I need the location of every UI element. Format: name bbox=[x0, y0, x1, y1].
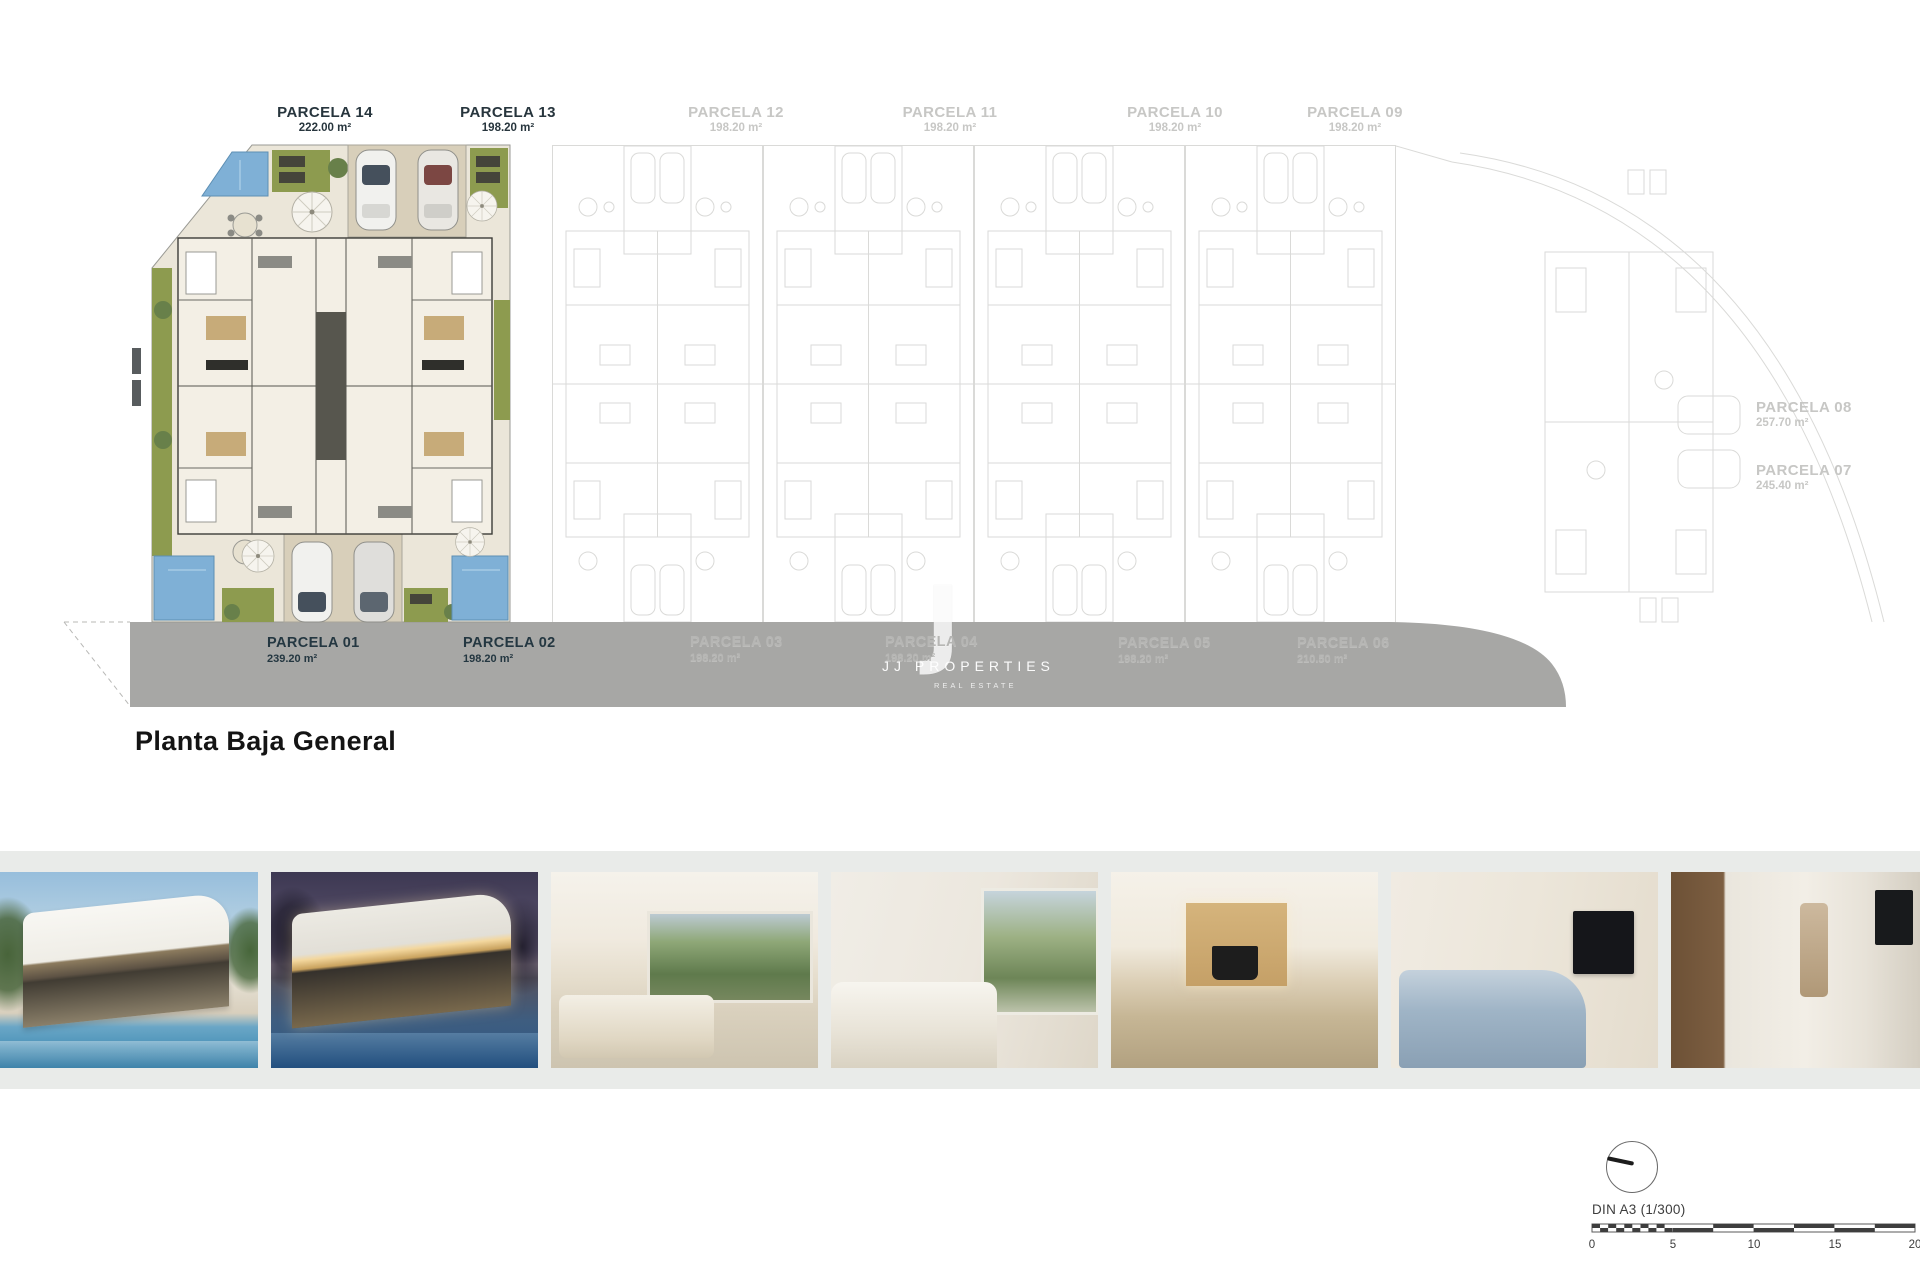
parcel-label-14: PARCELA 14 222.00 m² bbox=[277, 104, 373, 135]
colored-plan-block bbox=[152, 145, 510, 622]
photo-living-dining-interior bbox=[551, 872, 818, 1068]
scale-bar bbox=[1592, 1224, 1915, 1232]
left-boundary-marks bbox=[132, 348, 141, 406]
parcel-label-12: PARCELA 12 198.20 m² bbox=[688, 104, 784, 135]
photo-bathroom-interior bbox=[1671, 872, 1920, 1068]
faded-right-section bbox=[1396, 146, 1884, 622]
parcel-label-11: PARCELA 11 198.20 m² bbox=[903, 104, 998, 135]
parcel-label-02: PARCELA 02 198.20 m² bbox=[463, 636, 556, 665]
parcel-label-10: PARCELA 10 198.20 m² bbox=[1127, 104, 1223, 135]
scale-tick-5: 5 bbox=[1670, 1239, 1676, 1251]
scale-tick-15: 15 bbox=[1829, 1239, 1842, 1251]
parcel-label-03: PARCELA 03 198.20 m² bbox=[690, 635, 783, 664]
scale-tick-10: 10 bbox=[1748, 1239, 1761, 1251]
photo-kitchen-dining-interior bbox=[1111, 872, 1378, 1068]
parcel-label-13: PARCELA 13 198.20 m² bbox=[460, 104, 556, 135]
parcel-label-09: PARCELA 09 198.20 m² bbox=[1307, 104, 1403, 135]
scale-tick-0: 0 bbox=[1589, 1239, 1595, 1251]
photo-living-room-interior bbox=[831, 872, 1098, 1068]
parcel-label-06: PARCELA 06 210.50 m² bbox=[1297, 636, 1390, 665]
watermark-tagline: REAL ESTATE bbox=[934, 681, 1016, 690]
parcel-label-08: PARCELA 08 257.70 m² bbox=[1756, 399, 1852, 430]
photo-villa-exterior-day bbox=[0, 872, 258, 1068]
parcel-label-07: PARCELA 07 245.40 m² bbox=[1756, 462, 1852, 493]
page-title: Planta Baja General bbox=[135, 726, 396, 757]
parcel-label-04: PARCELA 04 198.20 m² bbox=[885, 635, 978, 664]
parcel-label-01: PARCELA 01 239.20 m² bbox=[267, 636, 360, 665]
road-dashed-edge bbox=[64, 622, 130, 706]
photo-villa-exterior-dusk bbox=[271, 872, 538, 1068]
plan-sheet: { "page": { "title": "Planta Baja Genera… bbox=[0, 0, 1920, 1280]
cars bbox=[292, 150, 458, 622]
parcel-label-05: PARCELA 05 198.20 m² bbox=[1118, 636, 1211, 665]
photo-bedroom-interior bbox=[1391, 872, 1658, 1068]
scale-tick-20: 20 bbox=[1909, 1239, 1920, 1251]
scale-format-label: DIN A3 (1/300) bbox=[1592, 1202, 1686, 1217]
north-arrow-icon bbox=[1606, 1141, 1658, 1193]
faded-units bbox=[552, 146, 1396, 623]
